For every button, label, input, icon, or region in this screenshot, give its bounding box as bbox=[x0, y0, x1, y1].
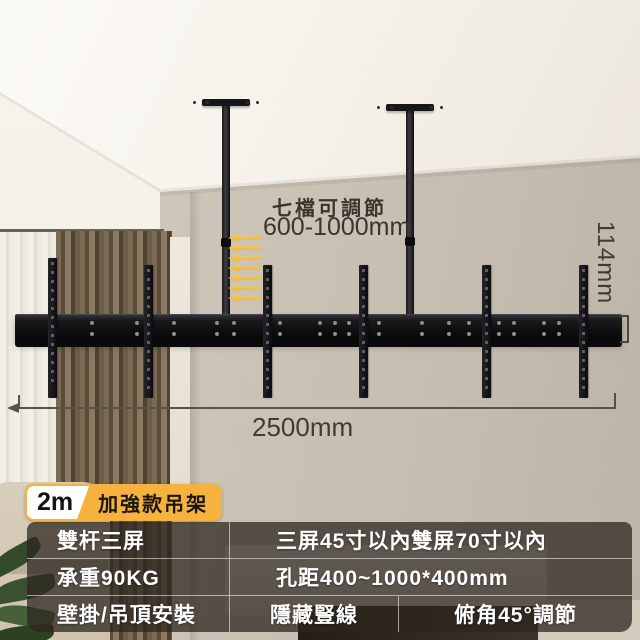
width-dimension-tick bbox=[614, 393, 616, 409]
height-dimension-bracket bbox=[620, 315, 629, 343]
rail-screw bbox=[542, 321, 546, 325]
rail-screw bbox=[232, 332, 236, 336]
vesa-arm-holes bbox=[485, 269, 488, 394]
rail-screw bbox=[135, 321, 139, 325]
rail-screw bbox=[512, 321, 516, 325]
rail-screw bbox=[172, 332, 176, 336]
spec-cell: 承重90KG bbox=[27, 559, 229, 595]
size-badge: 2m 加強款吊架 bbox=[25, 484, 222, 521]
window-frame bbox=[170, 237, 190, 519]
adjust-arrow-icon bbox=[228, 244, 262, 252]
adjust-arrow-icon bbox=[228, 264, 262, 272]
rail-screw bbox=[447, 332, 451, 336]
plate-screw bbox=[206, 101, 209, 104]
vesa-arm bbox=[359, 265, 368, 398]
adjust-arrow-icon bbox=[228, 234, 262, 242]
spec-table: 雙杆三屏三屏45寸以內雙屏70寸以內承重90KG孔距400~1000*400mm… bbox=[27, 522, 632, 632]
rail-screw bbox=[377, 332, 381, 336]
ceiling-plate-right bbox=[386, 104, 434, 111]
rail-screw bbox=[467, 321, 471, 325]
rail-screw bbox=[215, 332, 219, 336]
width-dimension-label: 2500mm bbox=[252, 412, 353, 443]
adjust-arrows bbox=[228, 234, 262, 304]
plate-screw bbox=[246, 101, 249, 104]
rail-screw bbox=[318, 332, 322, 336]
plate-screw bbox=[390, 106, 393, 109]
plate-screw bbox=[440, 106, 443, 109]
rail-screw bbox=[420, 332, 424, 336]
rail-screw bbox=[420, 321, 424, 325]
vesa-arm bbox=[263, 265, 272, 398]
badge-size-label: 2m bbox=[27, 486, 89, 519]
adjust-range-label: 600-1000mm bbox=[263, 213, 410, 242]
rail-screw bbox=[172, 321, 176, 325]
rail-screw bbox=[90, 321, 94, 325]
rail-screw bbox=[557, 332, 561, 336]
spec-row: 雙杆三屏三屏45寸以內雙屏70寸以內 bbox=[27, 522, 632, 558]
adjust-arrow-icon bbox=[228, 274, 262, 282]
spec-row: 壁掛/吊頂安裝隱藏豎線俯角45°調節 bbox=[27, 595, 632, 632]
spec-cell: 隱藏豎線 bbox=[229, 596, 398, 632]
rail-screw bbox=[377, 321, 381, 325]
vesa-arm-holes bbox=[582, 269, 585, 394]
rail-screw bbox=[542, 332, 546, 336]
rail-screw bbox=[447, 321, 451, 325]
spec-row: 承重90KG孔距400~1000*400mm bbox=[27, 558, 632, 595]
adjust-arrow-icon bbox=[228, 294, 262, 302]
spec-cell: 雙杆三屏 bbox=[27, 522, 229, 558]
badge-name-label: 加強款吊架 bbox=[82, 484, 222, 521]
vesa-arm bbox=[579, 265, 588, 398]
rail-screw bbox=[467, 332, 471, 336]
width-dimension-line bbox=[18, 407, 616, 409]
rail-screw bbox=[90, 332, 94, 336]
rail-screw bbox=[278, 321, 282, 325]
rail-screw bbox=[333, 321, 337, 325]
adjust-arrow-icon bbox=[228, 254, 262, 262]
rail-screw bbox=[497, 321, 501, 325]
product-image: 七檔可調節 600-1000mm 2500mm 114mm 2m 加強款吊架 雙… bbox=[0, 0, 640, 640]
spec-cell: 俯角45°調節 bbox=[398, 596, 632, 632]
adjust-arrow-icon bbox=[228, 284, 262, 292]
rail-screw bbox=[232, 321, 236, 325]
vesa-arm bbox=[482, 265, 491, 398]
vesa-arm bbox=[48, 258, 57, 398]
vesa-arm-holes bbox=[147, 269, 150, 394]
vesa-arm bbox=[144, 265, 153, 398]
vesa-arm-holes bbox=[51, 262, 54, 387]
spec-cell: 三屏45寸以內雙屏70寸以內 bbox=[229, 522, 632, 558]
plate-screw bbox=[430, 106, 433, 109]
width-dimension-tick bbox=[18, 395, 20, 408]
rail-screw bbox=[497, 332, 501, 336]
rail-screw bbox=[318, 321, 322, 325]
rail-screw bbox=[215, 321, 219, 325]
plate-screw bbox=[256, 101, 259, 104]
rail-screw bbox=[278, 332, 282, 336]
height-dimension-label: 114mm bbox=[591, 221, 619, 304]
ceiling-plate-left bbox=[202, 99, 250, 106]
spec-cell: 壁掛/吊頂安裝 bbox=[27, 596, 229, 632]
mount-rail-lip bbox=[15, 341, 622, 347]
rail-screw bbox=[347, 332, 351, 336]
rail-screw bbox=[135, 332, 139, 336]
mount-rail bbox=[15, 314, 622, 342]
vesa-arm-holes bbox=[362, 269, 365, 394]
rail-screw bbox=[347, 321, 351, 325]
spec-cell: 孔距400~1000*400mm bbox=[229, 559, 632, 595]
plate-screw bbox=[193, 101, 196, 104]
vesa-arm-holes bbox=[266, 269, 269, 394]
rail-screw bbox=[512, 332, 516, 336]
plate-screw bbox=[377, 106, 380, 109]
rail-screw bbox=[557, 321, 561, 325]
rail-screw bbox=[333, 332, 337, 336]
